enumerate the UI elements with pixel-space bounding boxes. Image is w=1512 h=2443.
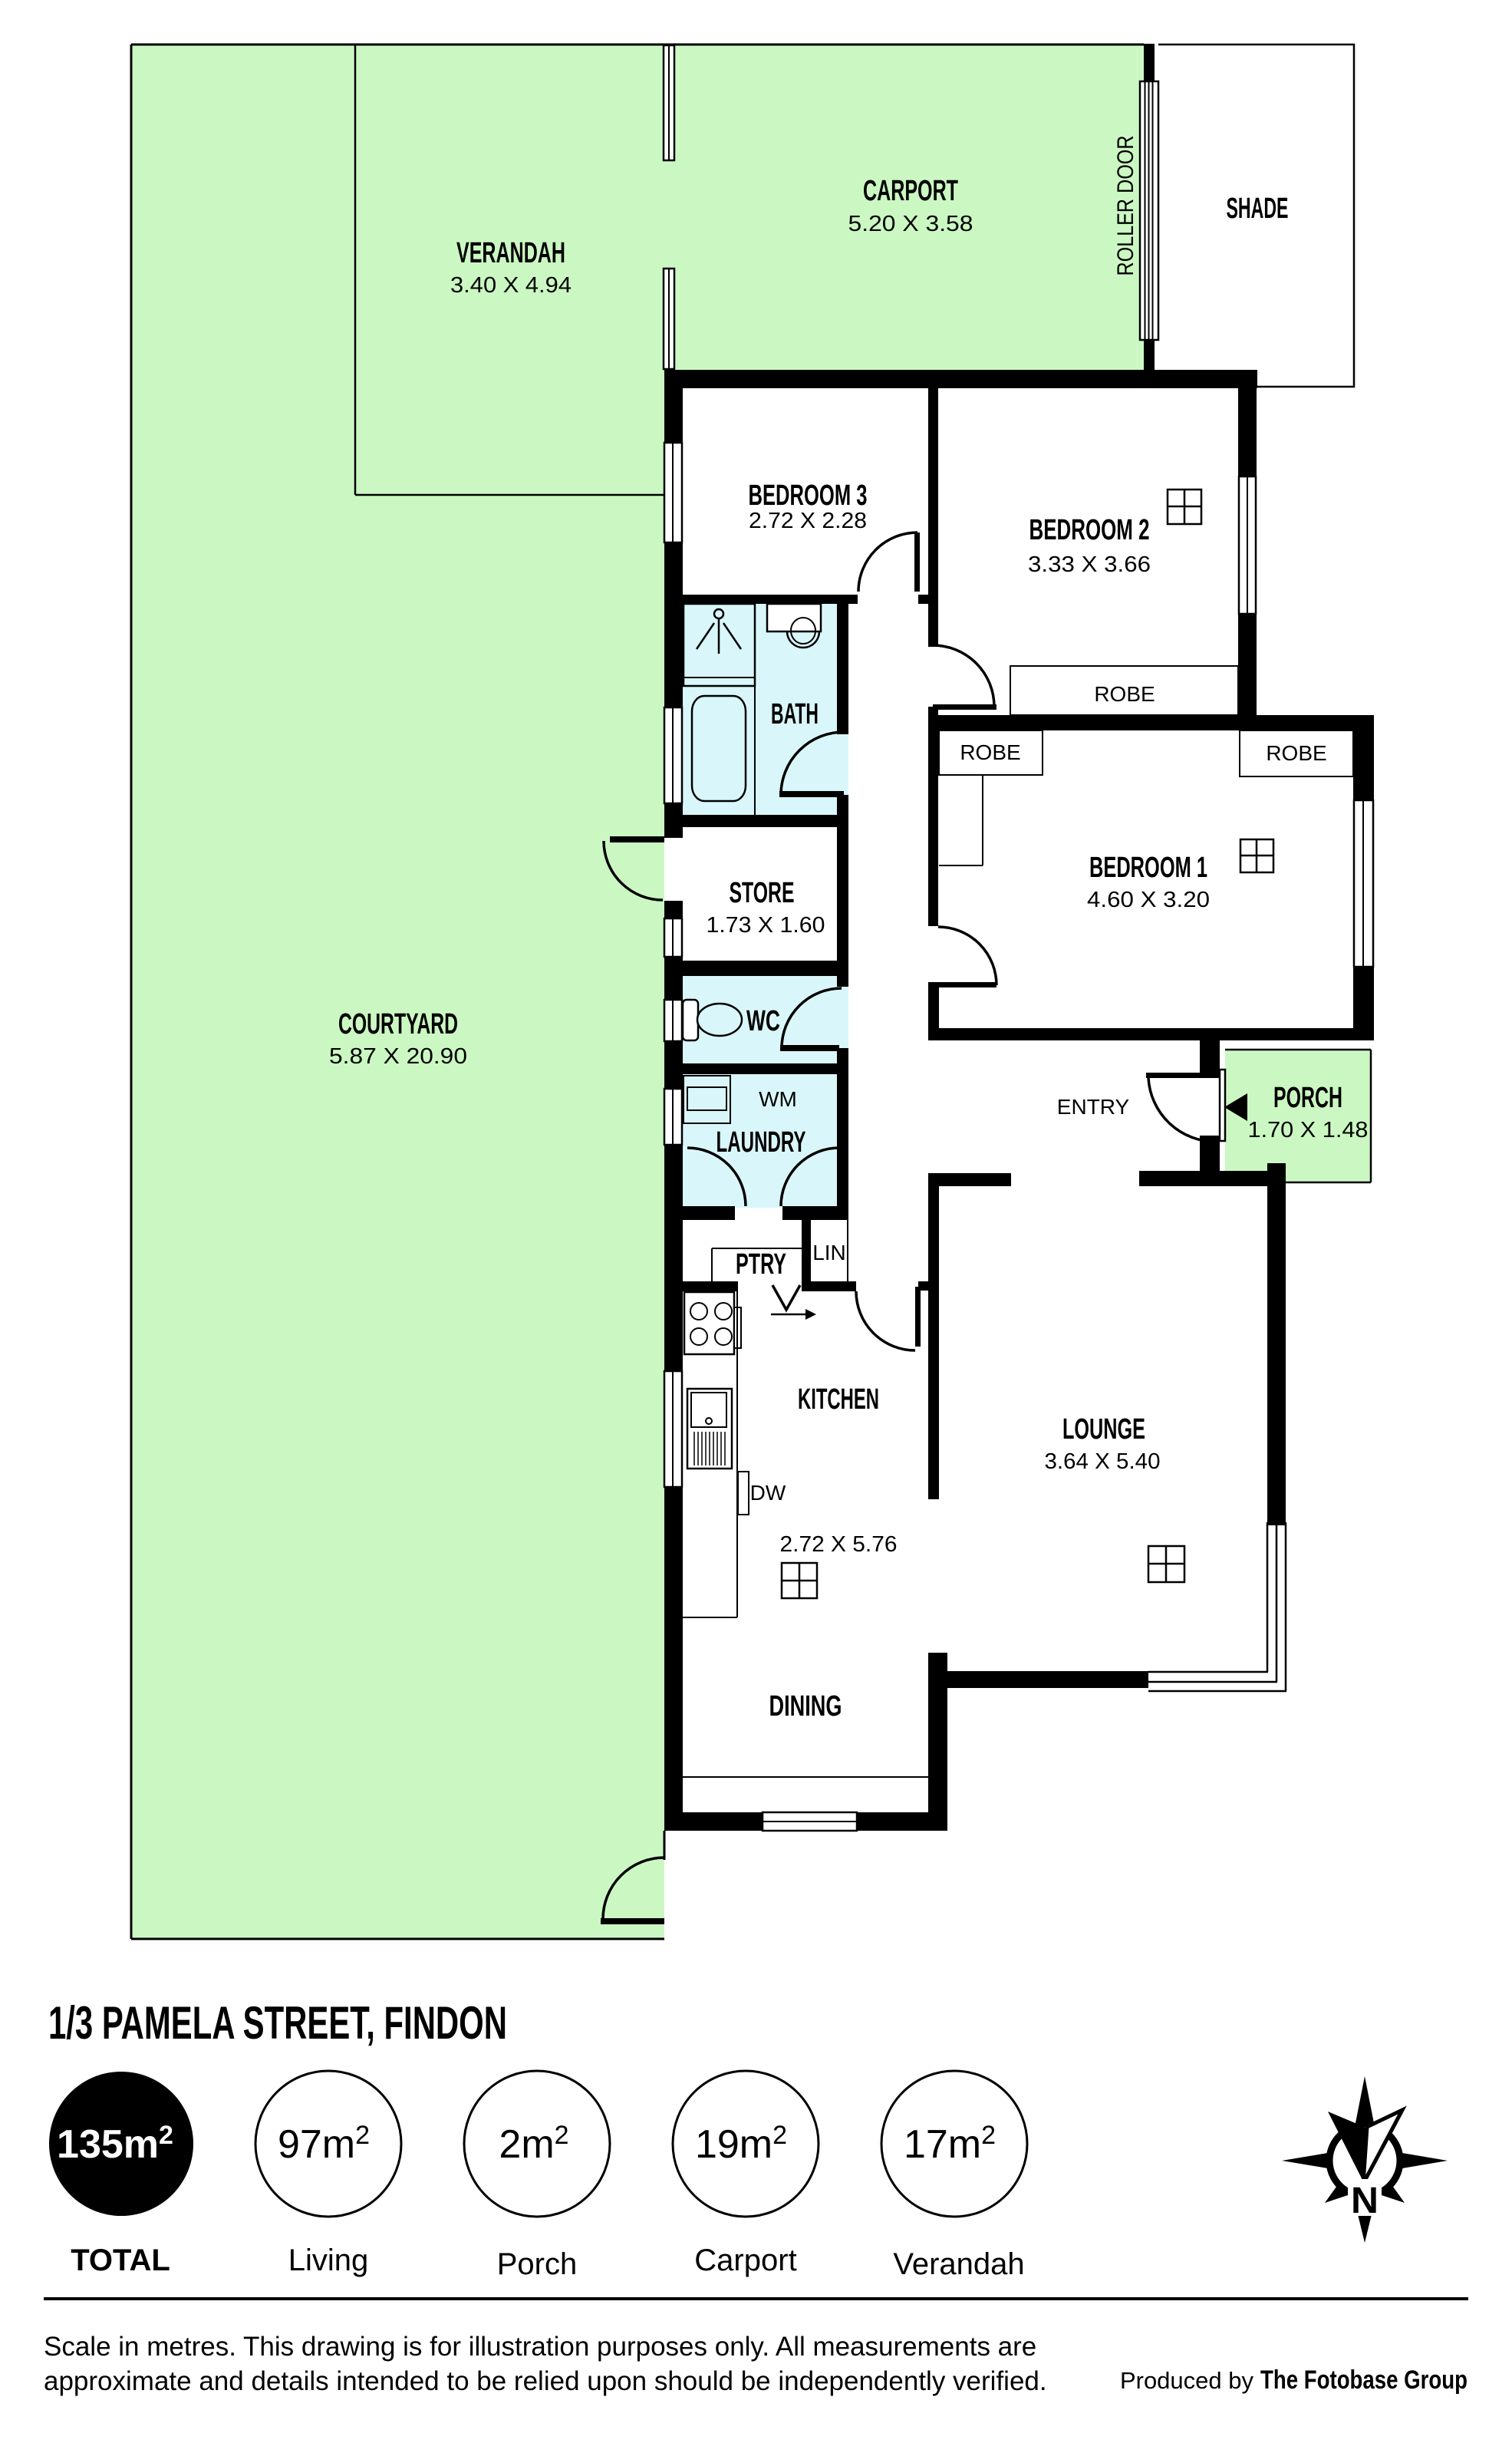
svg-text:3.64 X 5.40: 3.64 X 5.40: [1045, 1449, 1161, 1474]
svg-text:DW: DW: [750, 1481, 786, 1505]
svg-text:WM: WM: [759, 1087, 797, 1111]
svg-text:3.33 X 3.66: 3.33 X 3.66: [1028, 552, 1151, 577]
svg-text:ROBE: ROBE: [960, 740, 1020, 764]
svg-text:N: N: [1351, 2181, 1379, 2221]
svg-text:approximate and details intend: approximate and details intended to be r…: [44, 2366, 1047, 2396]
svg-text:135m2: 135m2: [57, 2121, 173, 2167]
svg-text:BEDROOM 2: BEDROOM 2: [1029, 514, 1150, 546]
svg-text:ROBE: ROBE: [1266, 741, 1326, 765]
svg-text:Verandah: Verandah: [893, 2247, 1024, 2281]
svg-text:TOTAL: TOTAL: [71, 2244, 170, 2277]
svg-text:KITCHEN: KITCHEN: [798, 1383, 879, 1416]
svg-text:2.72 X 5.76: 2.72 X 5.76: [780, 1532, 898, 1557]
svg-text:WC: WC: [746, 1005, 780, 1037]
svg-text:ENTRY: ENTRY: [1057, 1095, 1130, 1119]
svg-text:1.73 X 1.60: 1.73 X 1.60: [707, 913, 825, 938]
svg-text:Produced by: Produced by: [1120, 2367, 1254, 2394]
svg-text:Scale in metres. This drawing: Scale in metres. This drawing is for ill…: [44, 2332, 1036, 2362]
svg-text:3.40 X 4.94: 3.40 X 4.94: [450, 273, 572, 298]
svg-text:CARPORT: CARPORT: [863, 175, 958, 207]
svg-text:5.87 X 20.90: 5.87 X 20.90: [329, 1044, 467, 1069]
svg-text:VERANDAH: VERANDAH: [456, 237, 565, 269]
svg-text:1.70 X 1.48: 1.70 X 1.48: [1248, 1118, 1369, 1142]
svg-text:SHADE: SHADE: [1227, 193, 1289, 225]
svg-text:Porch: Porch: [497, 2247, 578, 2281]
svg-text:STORE: STORE: [730, 877, 795, 909]
svg-text:LIN: LIN: [812, 1241, 846, 1264]
svg-text:BATH: BATH: [771, 698, 819, 730]
svg-text:LAUNDRY: LAUNDRY: [716, 1126, 806, 1159]
svg-text:2.72 X 2.28: 2.72 X 2.28: [749, 509, 867, 533]
svg-text:4.60 X 3.20: 4.60 X 3.20: [1087, 888, 1210, 912]
svg-text:PTRY: PTRY: [736, 1248, 786, 1281]
svg-text:The Fotobase Group: The Fotobase Group: [1260, 2366, 1468, 2395]
svg-text:DINING: DINING: [769, 1690, 842, 1723]
svg-text:LOUNGE: LOUNGE: [1062, 1413, 1145, 1446]
svg-text:COURTYARD: COURTYARD: [338, 1008, 458, 1040]
svg-text:ROBE: ROBE: [1094, 682, 1155, 706]
svg-text:BEDROOM 3: BEDROOM 3: [749, 480, 868, 512]
svg-text:5.20 X 3.58: 5.20 X 3.58: [848, 212, 973, 236]
svg-text:Living: Living: [288, 2244, 369, 2277]
svg-text:1/3 PAMELA STREET, FINDON: 1/3 PAMELA STREET, FINDON: [48, 1997, 507, 2049]
svg-text:PORCH: PORCH: [1273, 1082, 1342, 1114]
svg-text:ROLLER DOOR: ROLLER DOOR: [1113, 136, 1138, 276]
svg-text:BEDROOM 1: BEDROOM 1: [1089, 852, 1207, 884]
svg-text:Carport: Carport: [694, 2244, 796, 2277]
